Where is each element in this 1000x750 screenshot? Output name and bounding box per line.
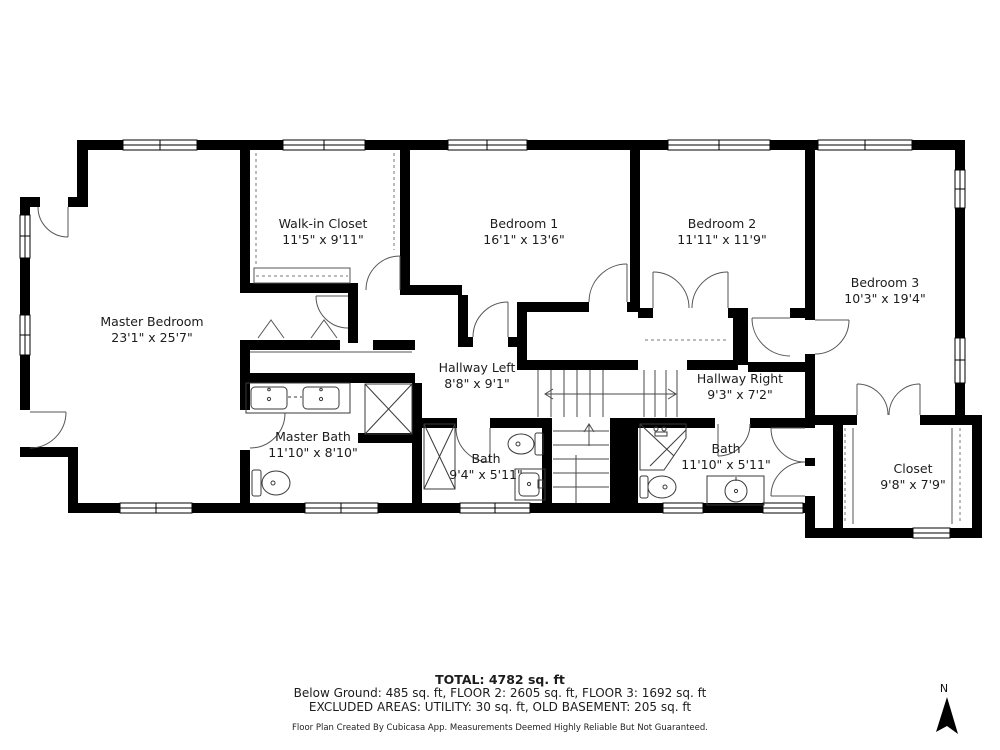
- room-dims: 11'10" x 5'11": [681, 457, 770, 473]
- window: [668, 140, 770, 150]
- room-name: Hallway Right: [697, 371, 783, 387]
- window: [448, 140, 527, 150]
- total-area: TOTAL: 4782 sq. ft: [0, 672, 1000, 687]
- window: [20, 215, 30, 258]
- door-arc: [889, 384, 920, 415]
- room-label-hallway-right: Hallway Right 9'3" x 7'2": [697, 371, 783, 403]
- room-dims: 9'4" x 5'11": [449, 467, 522, 483]
- room-name: Master Bedroom: [100, 314, 203, 330]
- door-arc: [653, 272, 689, 308]
- window: [120, 503, 192, 513]
- room-label-master-bedroom: Master Bedroom 23'1" x 25'7": [100, 314, 203, 346]
- stair-arrow-horizontal: [545, 389, 676, 399]
- room-name: Master Bath: [268, 429, 357, 445]
- room-name: Closet: [880, 461, 946, 477]
- room-dims: 11'5" x 9'11": [279, 232, 368, 248]
- room-dims: 11'11" x 11'9": [677, 232, 766, 248]
- room-label-hallway-left: Hallway Left 8'8" x 9'1": [439, 360, 516, 392]
- door-arc: [752, 318, 790, 356]
- room-dims: 23'1" x 25'7": [100, 330, 203, 346]
- door-arc: [473, 302, 508, 337]
- stair-arrow-up: [584, 424, 594, 446]
- toilet: [252, 470, 290, 496]
- window: [955, 338, 965, 383]
- door-arc: [771, 428, 805, 462]
- room-dims: 11'10" x 8'10": [268, 445, 357, 461]
- room-name: Bath: [449, 451, 522, 467]
- corner-shower: [640, 424, 686, 470]
- room-dims: 9'8" x 7'9": [880, 477, 946, 493]
- window: [283, 140, 365, 150]
- room-name: Bedroom 3: [844, 275, 925, 291]
- room-label-bedroom-3: Bedroom 3 10'3" x 19'4": [844, 275, 925, 307]
- room-dims: 8'8" x 9'1": [439, 376, 516, 392]
- excluded-areas: EXCLUDED AREAS: UTILITY: 30 sq. ft, OLD …: [0, 701, 1000, 715]
- door-arc: [38, 207, 68, 237]
- door-arc: [771, 462, 805, 496]
- compass-north-label: N: [936, 682, 952, 695]
- door-arc: [692, 272, 728, 308]
- room-name: Walk-in Closet: [279, 216, 368, 232]
- window: [663, 503, 703, 513]
- window: [123, 140, 197, 150]
- room-label-bedroom-2: Bedroom 2 11'11" x 11'9": [677, 216, 766, 248]
- room-name: Bath: [681, 441, 770, 457]
- room-dims: 9'3" x 7'2": [697, 387, 783, 403]
- sink-vanity: [707, 476, 764, 505]
- window: [20, 315, 30, 355]
- window: [763, 503, 803, 513]
- shower: [365, 384, 412, 434]
- disclaimer: Floor Plan Created By Cubicasa App. Meas…: [0, 723, 1000, 733]
- room-dims: 16'1" x 13'6": [483, 232, 564, 248]
- window: [955, 170, 965, 208]
- window: [460, 503, 530, 513]
- room-label-bath-left: Bath 9'4" x 5'11": [449, 451, 522, 483]
- door-arc: [815, 320, 849, 354]
- room-dims: 10'3" x 19'4": [844, 291, 925, 307]
- door-arc: [316, 296, 348, 328]
- room-name: Bedroom 1: [483, 216, 564, 232]
- room-label-closet: Closet 9'8" x 7'9": [880, 461, 946, 493]
- window: [913, 528, 950, 538]
- window: [818, 140, 912, 150]
- floor-areas: Below Ground: 485 sq. ft, FLOOR 2: 2605 …: [0, 687, 1000, 701]
- room-name: Bedroom 2: [677, 216, 766, 232]
- room-label-walk-in-closet: Walk-in Closet 11'5" x 9'11": [279, 216, 368, 248]
- summary-footer: TOTAL: 4782 sq. ft Below Ground: 485 sq.…: [0, 672, 1000, 733]
- door-arc: [366, 256, 400, 290]
- door-arc: [589, 264, 627, 302]
- door-arc: [857, 384, 888, 415]
- room-label-master-bath: Master Bath 11'10" x 8'10": [268, 429, 357, 461]
- stair-treads-lower: [553, 431, 609, 503]
- toilet: [640, 476, 676, 498]
- floor-plan-page: Master Bedroom 23'1" x 25'7" Walk-in Clo…: [0, 0, 1000, 750]
- room-label-bedroom-1: Bedroom 1 16'1" x 13'6": [483, 216, 564, 248]
- door-arc: [30, 412, 66, 448]
- room-name: Hallway Left: [439, 360, 516, 376]
- room-label-bath-right: Bath 11'10" x 5'11": [681, 441, 770, 473]
- window: [305, 503, 378, 513]
- double-sink-vanity: [246, 383, 350, 413]
